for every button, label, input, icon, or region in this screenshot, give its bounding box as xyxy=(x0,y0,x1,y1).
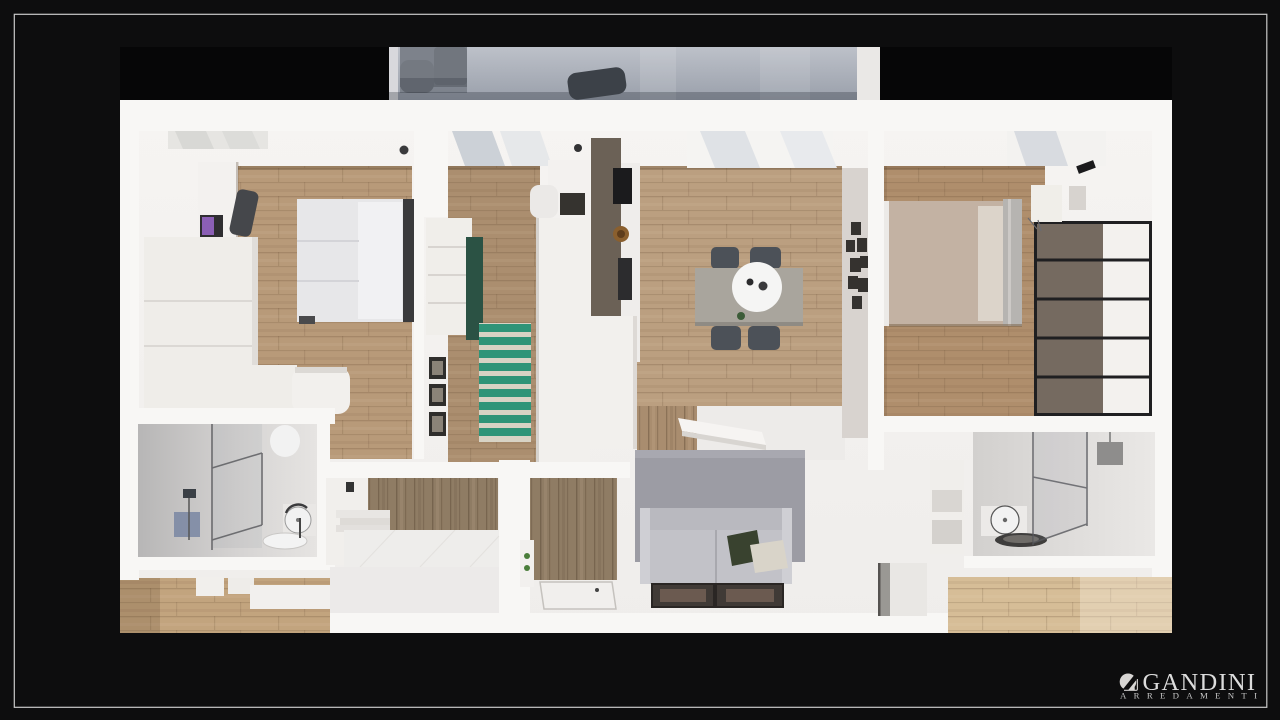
svg-text:ARREDAMENTI: ARREDAMENTI xyxy=(1120,691,1264,701)
